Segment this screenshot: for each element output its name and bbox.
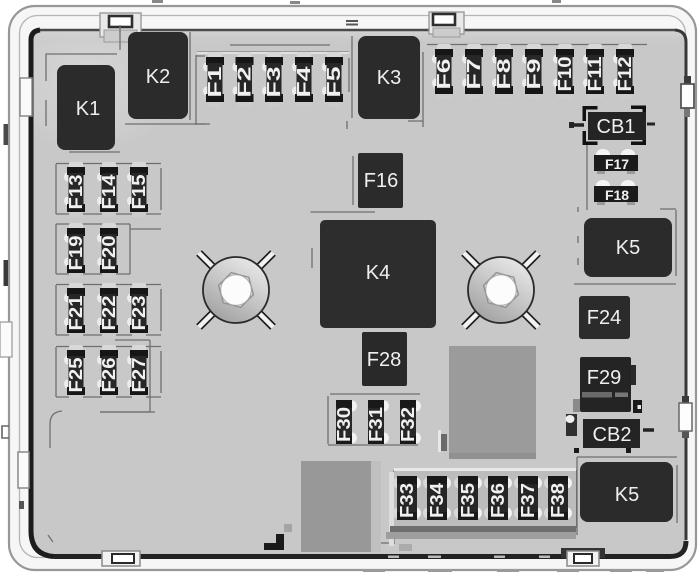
svg-text:F13: F13 (66, 175, 86, 210)
svg-text:F33: F33 (397, 483, 417, 518)
svg-text:F11: F11 (585, 57, 605, 92)
svg-text:F28: F28 (367, 349, 401, 371)
svg-text:F22: F22 (99, 296, 119, 331)
svg-text:F36: F36 (488, 483, 508, 518)
svg-text:F24: F24 (587, 307, 621, 329)
svg-text:F31: F31 (366, 407, 386, 442)
svg-text:F34: F34 (427, 483, 447, 518)
svg-text:K1: K1 (76, 98, 100, 120)
svg-text:F15: F15 (129, 175, 149, 210)
svg-text:F25: F25 (66, 358, 86, 393)
svg-text:CB1: CB1 (597, 116, 636, 138)
svg-text:F19: F19 (66, 236, 86, 271)
svg-text:F4: F4 (294, 67, 314, 98)
svg-text:F35: F35 (458, 483, 478, 518)
svg-text:F5: F5 (324, 67, 344, 98)
svg-text:F8: F8 (494, 59, 514, 90)
svg-text:K2: K2 (146, 66, 170, 88)
svg-text:F32: F32 (398, 407, 418, 442)
svg-text:F3: F3 (264, 67, 284, 98)
svg-text:F30: F30 (334, 407, 354, 442)
svg-text:F21: F21 (66, 296, 86, 331)
svg-text:K4: K4 (366, 262, 390, 284)
svg-text:F16: F16 (364, 170, 398, 192)
svg-text:F6: F6 (434, 59, 454, 90)
svg-text:F9: F9 (524, 59, 544, 90)
svg-text:K5: K5 (616, 237, 640, 259)
svg-text:F18: F18 (605, 187, 629, 203)
svg-text:F20: F20 (99, 236, 119, 271)
svg-text:F26: F26 (99, 358, 119, 393)
svg-text:F7: F7 (464, 59, 484, 90)
svg-text:F2: F2 (235, 67, 255, 98)
svg-text:F23: F23 (129, 296, 149, 331)
svg-text:K5: K5 (615, 484, 639, 506)
svg-text:K3: K3 (377, 67, 401, 89)
svg-text:F14: F14 (99, 175, 119, 210)
svg-text:F37: F37 (518, 483, 538, 518)
svg-text:F29: F29 (587, 367, 621, 389)
svg-text:F38: F38 (548, 483, 568, 518)
svg-text:F27: F27 (129, 358, 149, 393)
svg-text:F12: F12 (615, 57, 635, 92)
svg-text:F10: F10 (555, 57, 575, 92)
svg-text:F1: F1 (205, 67, 225, 98)
svg-text:CB2: CB2 (593, 424, 632, 446)
svg-text:F17: F17 (605, 156, 629, 172)
